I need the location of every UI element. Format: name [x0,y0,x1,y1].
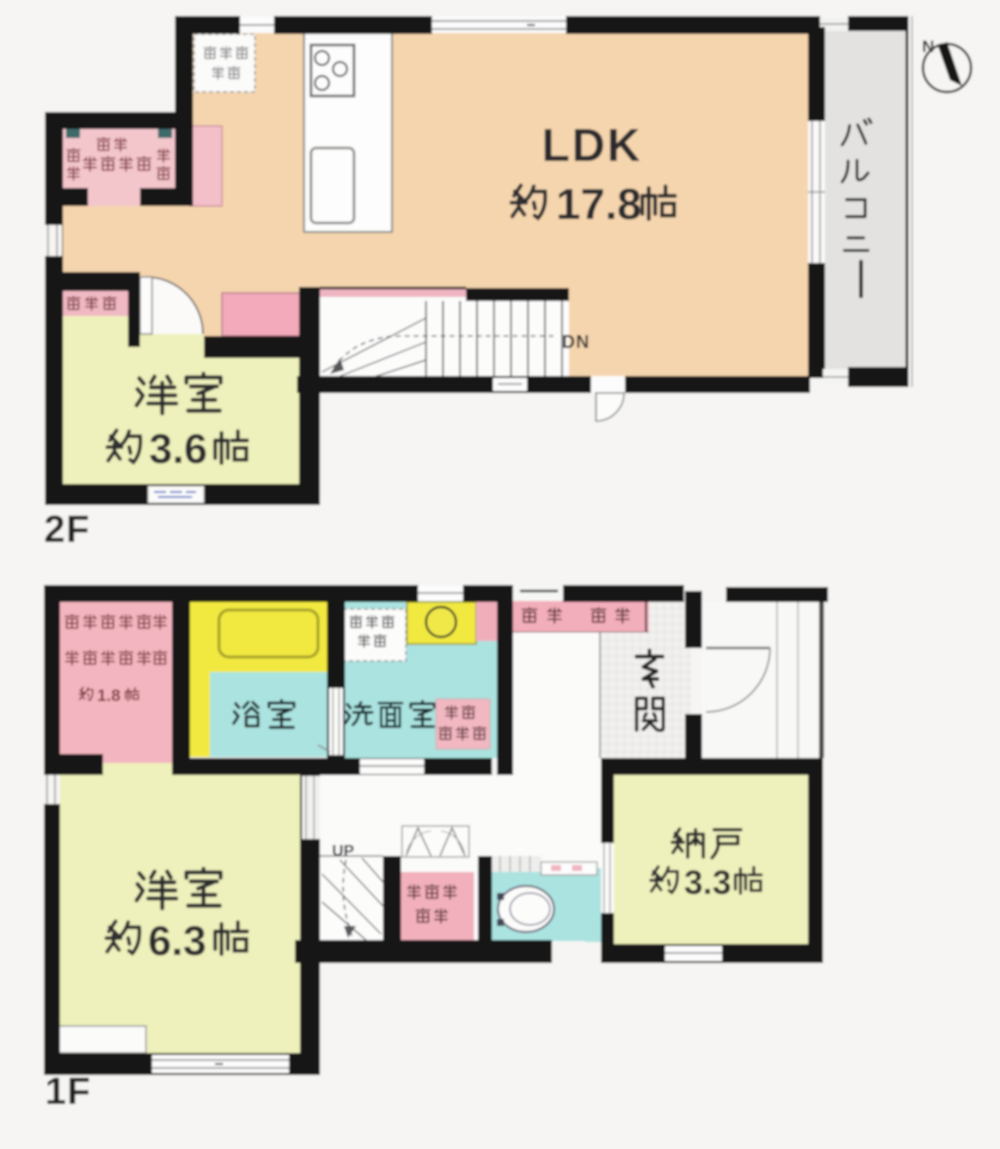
svg-text:UP: UP [332,843,355,860]
svg-text:2F: 2F [44,509,90,551]
svg-text:DN: DN [562,332,590,352]
svg-text:17.8: 17.8 [556,180,642,229]
svg-text:6.3: 6.3 [148,917,206,964]
svg-text:LDK: LDK [542,119,643,171]
svg-text:3.6: 3.6 [149,425,207,472]
svg-text:N: N [922,37,934,56]
svg-text:1.8: 1.8 [97,686,121,705]
svg-text:1F: 1F [45,1071,91,1113]
svg-text:3.3: 3.3 [684,864,731,902]
